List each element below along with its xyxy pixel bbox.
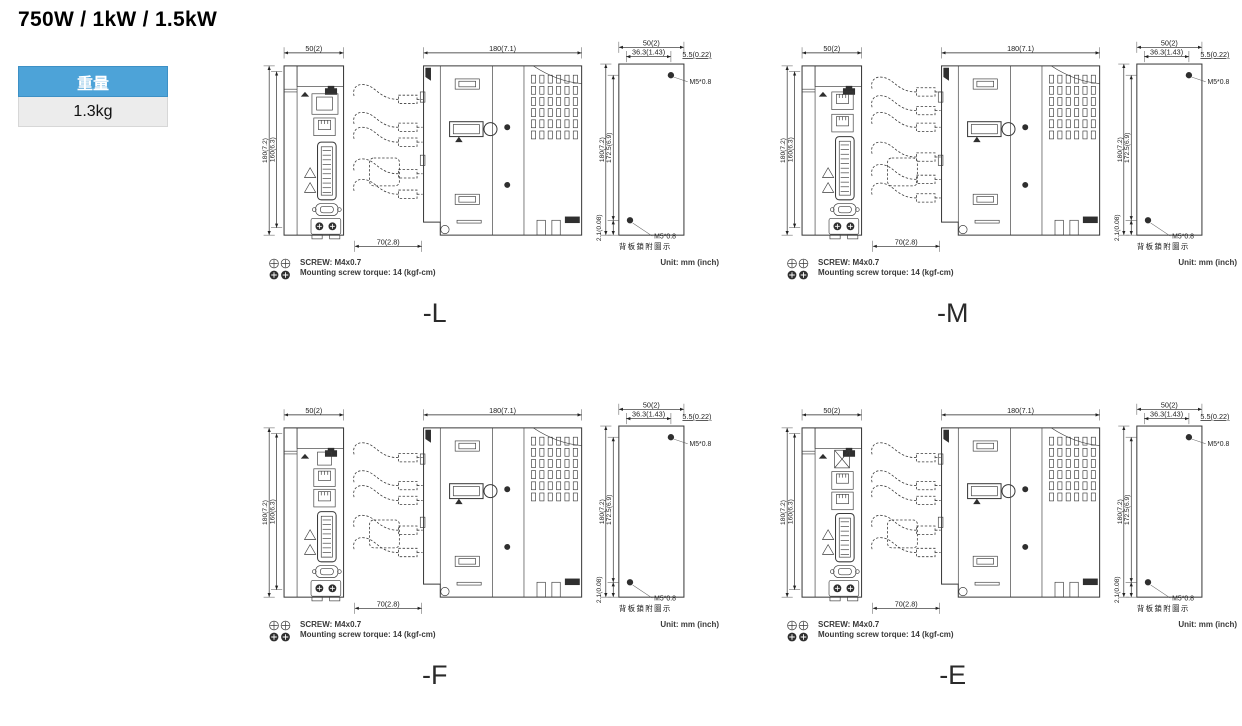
- torque-note: Mounting screw torque: 14 (kgf-cm): [300, 630, 436, 641]
- screw-callout-top: M5*0.8: [690, 79, 712, 86]
- dim-label: 160(6.3): [788, 137, 795, 162]
- variant-section-M: 50(2)180(7.2)160(6.3)70(2.8)180(7.1)50(2…: [776, 38, 1241, 329]
- dim-label: 180(7.1): [489, 44, 516, 53]
- screw-head-icon: [268, 258, 293, 286]
- rear-caption: 背板鎖附圖示: [619, 241, 672, 251]
- dim-label: 180(7.2): [1117, 137, 1124, 162]
- dim-label: 180(7.1): [1007, 406, 1034, 415]
- screw-callout-top: M5*0.8: [1208, 441, 1230, 448]
- dim-label: 180(7.2): [780, 138, 787, 163]
- dimension-drawing: 50(2)180(7.2)160(6.3)70(2.8)180(7.1)50(2…: [258, 38, 723, 256]
- dim-label: 5.5(0.22): [1200, 50, 1229, 59]
- dim-label: 50(2): [823, 406, 840, 415]
- dim-label: 180(7.2): [599, 137, 606, 162]
- rear-caption: 背板鎖附圖示: [1137, 603, 1190, 613]
- screw-callout-bottom: M5*0.8: [1172, 595, 1194, 602]
- dim-label: 172.5(6.9): [1124, 132, 1131, 163]
- rear-view: 50(2)36.3(1.43)5.5(0.22)M5*0.8M5*0.8180(…: [1114, 38, 1229, 251]
- dim-label: 50(2): [305, 406, 322, 415]
- notes-row: SCREW: M4x0.7 Mounting screw torque: 14 …: [258, 258, 723, 286]
- dim-label: 180(7.2): [262, 500, 269, 525]
- cable-connectors: 70(2.8): [872, 77, 941, 252]
- dim-label: 160(6.3): [788, 499, 795, 524]
- dimension-drawing-svg: 50(2)180(7.2)160(6.3)70(2.8)180(7.1)50(2…: [258, 400, 723, 618]
- torque-note: Mounting screw torque: 14 (kgf-cm): [300, 268, 436, 279]
- variant-section-F: 50(2)180(7.2)160(6.3)70(2.8)180(7.1)50(2…: [258, 400, 723, 691]
- dim-label: 180(7.2): [780, 500, 787, 525]
- side-view: 180(7.1): [938, 44, 1099, 235]
- unit-note: Unit: mm (inch): [1178, 258, 1237, 267]
- cable-connectors: 70(2.8): [354, 84, 423, 251]
- dim-label: 2.1(0.08): [1114, 576, 1121, 603]
- front-view: 50(2)180(7.2)160(6.3): [262, 44, 343, 239]
- weight-table-value: 1.3kg: [19, 97, 168, 127]
- dim-label: 50(2): [1161, 38, 1178, 47]
- dim-label: 172.5(6.9): [606, 132, 613, 163]
- dimension-drawing-svg: 50(2)180(7.2)160(6.3)70(2.8)180(7.1)50(2…: [776, 38, 1241, 256]
- page-title: 750W / 1kW / 1.5kW: [18, 8, 217, 32]
- notes-row: SCREW: M4x0.7 Mounting screw torque: 14 …: [258, 620, 723, 648]
- dim-label: 5.5(0.22): [682, 50, 711, 59]
- screw-callout-top: M5*0.8: [1208, 79, 1230, 86]
- rear-view: 50(2)36.3(1.43)5.5(0.22)M5*0.8M5*0.8180(…: [1114, 400, 1229, 613]
- dim-label: 70(2.8): [377, 237, 400, 246]
- dimension-drawing: 50(2)180(7.2)160(6.3)70(2.8)180(7.1)50(2…: [776, 400, 1241, 618]
- screw-note: SCREW: M4x0.7: [818, 258, 954, 269]
- screw-note: SCREW: M4x0.7: [300, 620, 436, 631]
- screw-callout-bottom: M5*0.8: [654, 233, 676, 240]
- screw-callout-bottom: M5*0.8: [654, 595, 676, 602]
- dimension-drawing: 50(2)180(7.2)160(6.3)70(2.8)180(7.1)50(2…: [776, 38, 1241, 256]
- dim-label: 50(2): [1161, 400, 1178, 409]
- dimension-drawing-svg: 50(2)180(7.2)160(6.3)70(2.8)180(7.1)50(2…: [258, 38, 723, 256]
- variant-label: -M: [776, 298, 1129, 329]
- dim-label: 50(2): [823, 44, 840, 53]
- screw-callout-top: M5*0.8: [690, 441, 712, 448]
- dimension-drawing-svg: 50(2)180(7.2)160(6.3)70(2.8)180(7.1)50(2…: [776, 400, 1241, 618]
- screw-note: SCREW: M4x0.7: [818, 620, 954, 631]
- dim-label: 180(7.1): [489, 406, 516, 415]
- dimension-drawing: 50(2)180(7.2)160(6.3)70(2.8)180(7.1)50(2…: [258, 400, 723, 618]
- dim-label: 70(2.8): [895, 237, 918, 246]
- front-view: 50(2)180(7.2)160(6.3): [262, 406, 343, 601]
- dim-label: 180(7.2): [599, 499, 606, 524]
- variant-section-L: 50(2)180(7.2)160(6.3)70(2.8)180(7.1)50(2…: [258, 38, 723, 329]
- variant-label: -L: [258, 298, 611, 329]
- screw-head-icon: [786, 258, 811, 286]
- dim-label: 180(7.1): [1007, 44, 1034, 53]
- side-view: 180(7.1): [420, 406, 581, 597]
- dim-label: 180(7.2): [1117, 499, 1124, 524]
- dim-label: 2.1(0.08): [596, 576, 603, 603]
- dim-label: 2.1(0.08): [596, 214, 603, 241]
- side-view: 180(7.1): [420, 44, 581, 235]
- unit-note: Unit: mm (inch): [1178, 620, 1237, 629]
- dim-label: 160(6.3): [270, 137, 277, 162]
- page: 750W / 1kW / 1.5kW 重量 1.3kg 50(2)180(7.2…: [0, 0, 1242, 726]
- dim-label: 36.3(1.43): [632, 48, 665, 57]
- side-view: 180(7.1): [938, 406, 1099, 597]
- dim-label: 160(6.3): [270, 499, 277, 524]
- cable-connectors: 70(2.8): [354, 443, 423, 614]
- dim-label: 180(7.2): [262, 138, 269, 163]
- screw-head-icon: [268, 620, 293, 648]
- dim-label: 172.5(6.9): [606, 494, 613, 524]
- rear-caption: 背板鎖附圖示: [1137, 241, 1190, 251]
- dim-label: 36.3(1.43): [1150, 48, 1183, 57]
- front-view: 50(2)180(7.2)160(6.3): [780, 406, 861, 601]
- dim-label: 70(2.8): [895, 599, 918, 608]
- dim-label: 2.1(0.08): [1114, 214, 1121, 241]
- dim-label: 36.3(1.43): [1150, 410, 1183, 419]
- cable-connectors: 70(2.8): [872, 443, 941, 614]
- unit-note: Unit: mm (inch): [660, 620, 719, 629]
- dim-label: 50(2): [643, 400, 660, 409]
- unit-note: Unit: mm (inch): [660, 258, 719, 267]
- variant-section-E: 50(2)180(7.2)160(6.3)70(2.8)180(7.1)50(2…: [776, 400, 1241, 691]
- weight-table: 重量 1.3kg: [18, 66, 168, 127]
- torque-note: Mounting screw torque: 14 (kgf-cm): [818, 268, 954, 279]
- dim-label: 50(2): [305, 44, 322, 53]
- dim-label: 50(2): [643, 38, 660, 47]
- notes-row: SCREW: M4x0.7 Mounting screw torque: 14 …: [776, 620, 1241, 648]
- variant-label: -F: [258, 660, 611, 691]
- dim-label: 36.3(1.43): [632, 410, 665, 419]
- weight-table-header: 重量: [19, 67, 168, 97]
- screw-note: SCREW: M4x0.7: [300, 258, 436, 269]
- front-view: 50(2)180(7.2)160(6.3): [780, 44, 861, 239]
- screw-callout-bottom: M5*0.8: [1172, 233, 1194, 240]
- variant-label: -E: [776, 660, 1129, 691]
- dim-label: 172.5(6.9): [1124, 494, 1131, 524]
- dim-label: 5.5(0.22): [682, 412, 711, 421]
- screw-head-icon: [786, 620, 811, 648]
- dim-label: 70(2.8): [377, 599, 400, 608]
- torque-note: Mounting screw torque: 14 (kgf-cm): [818, 630, 954, 641]
- rear-view: 50(2)36.3(1.43)5.5(0.22)M5*0.8M5*0.8180(…: [596, 400, 711, 613]
- dim-label: 5.5(0.22): [1200, 412, 1229, 421]
- rear-view: 50(2)36.3(1.43)5.5(0.22)M5*0.8M5*0.8180(…: [596, 38, 711, 251]
- notes-row: SCREW: M4x0.7 Mounting screw torque: 14 …: [776, 258, 1241, 286]
- rear-caption: 背板鎖附圖示: [619, 603, 672, 613]
